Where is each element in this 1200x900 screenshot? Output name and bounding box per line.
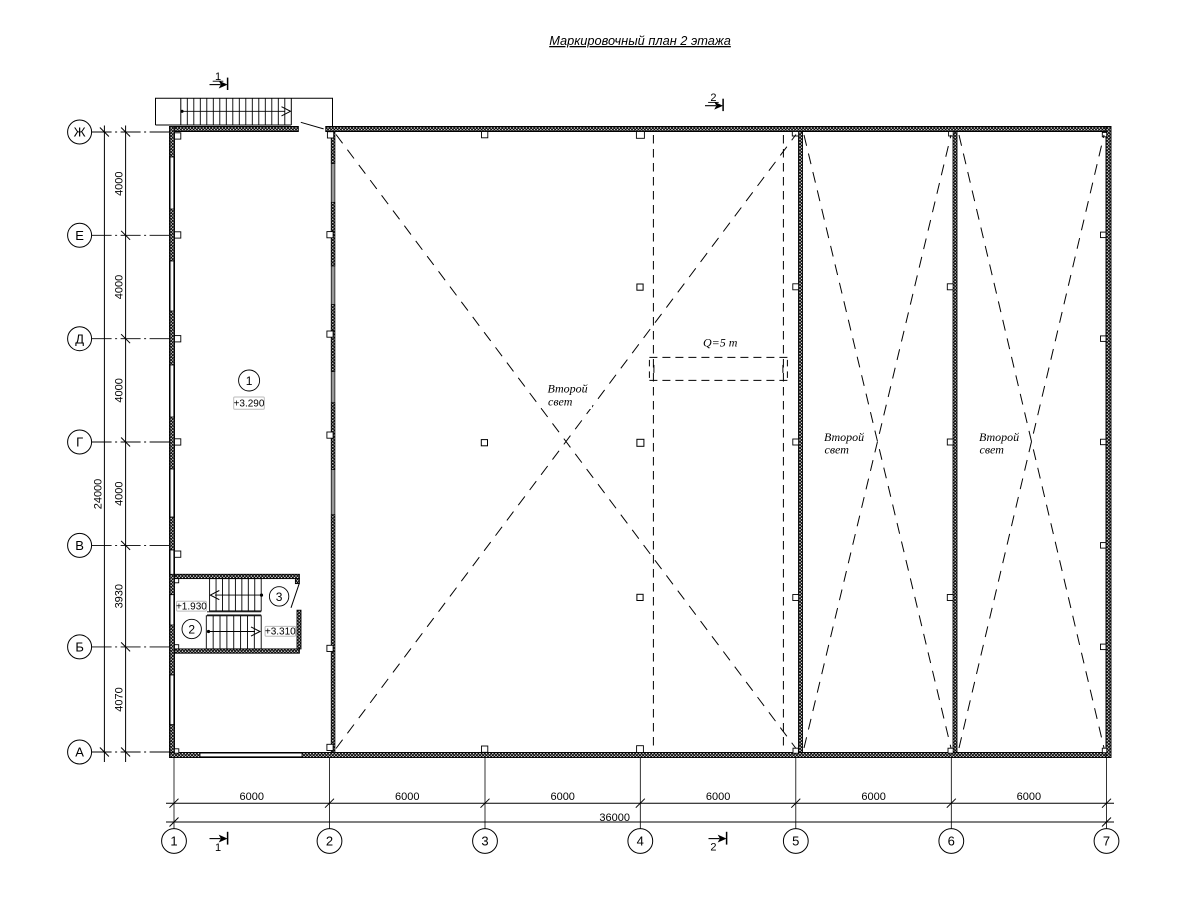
svg-text:24000: 24000: [93, 479, 105, 510]
svg-text:6000: 6000: [240, 791, 264, 803]
svg-text:4: 4: [637, 834, 644, 849]
svg-text:5: 5: [792, 834, 799, 849]
svg-text:6000: 6000: [861, 791, 885, 803]
svg-text:Г: Г: [76, 435, 83, 450]
svg-text:6000: 6000: [395, 791, 419, 803]
svg-text:Е: Е: [75, 228, 84, 243]
svg-text:Ж: Ж: [74, 125, 86, 140]
svg-text:1: 1: [170, 834, 177, 849]
svg-text:А: А: [75, 745, 84, 760]
svg-text:6000: 6000: [1017, 791, 1041, 803]
svg-text:свет: свет: [825, 442, 850, 456]
svg-text:36000: 36000: [599, 812, 630, 824]
svg-text:3930: 3930: [114, 584, 126, 608]
svg-text:3: 3: [276, 590, 283, 604]
svg-text:1: 1: [215, 842, 221, 854]
svg-text:4000: 4000: [114, 171, 126, 195]
svg-text:7: 7: [1103, 834, 1110, 849]
svg-text:4000: 4000: [114, 481, 126, 505]
svg-text:2: 2: [188, 622, 195, 636]
svg-text:2: 2: [710, 841, 716, 853]
svg-text:Маркировочный план 2 этажа: Маркировочный план 2 этажа: [549, 33, 731, 48]
svg-text:2: 2: [326, 834, 333, 849]
svg-text:+1.930: +1.930: [176, 601, 207, 612]
svg-text:Б: Б: [75, 640, 84, 655]
svg-text:6: 6: [948, 834, 955, 849]
svg-text:+3.310: +3.310: [265, 627, 296, 638]
svg-text:4000: 4000: [114, 378, 126, 402]
svg-text:Q=5 т: Q=5 т: [703, 336, 738, 350]
svg-text:свет: свет: [548, 394, 573, 408]
svg-text:4070: 4070: [114, 687, 126, 711]
svg-text:3: 3: [481, 834, 488, 849]
svg-text:+3.290: +3.290: [234, 399, 265, 410]
svg-text:6000: 6000: [706, 791, 730, 803]
svg-text:6000: 6000: [550, 791, 574, 803]
svg-text:Д: Д: [75, 331, 84, 346]
svg-text:В: В: [75, 538, 84, 553]
svg-text:1: 1: [246, 374, 253, 388]
svg-text:4000: 4000: [114, 275, 126, 299]
svg-text:свет: свет: [980, 442, 1005, 456]
